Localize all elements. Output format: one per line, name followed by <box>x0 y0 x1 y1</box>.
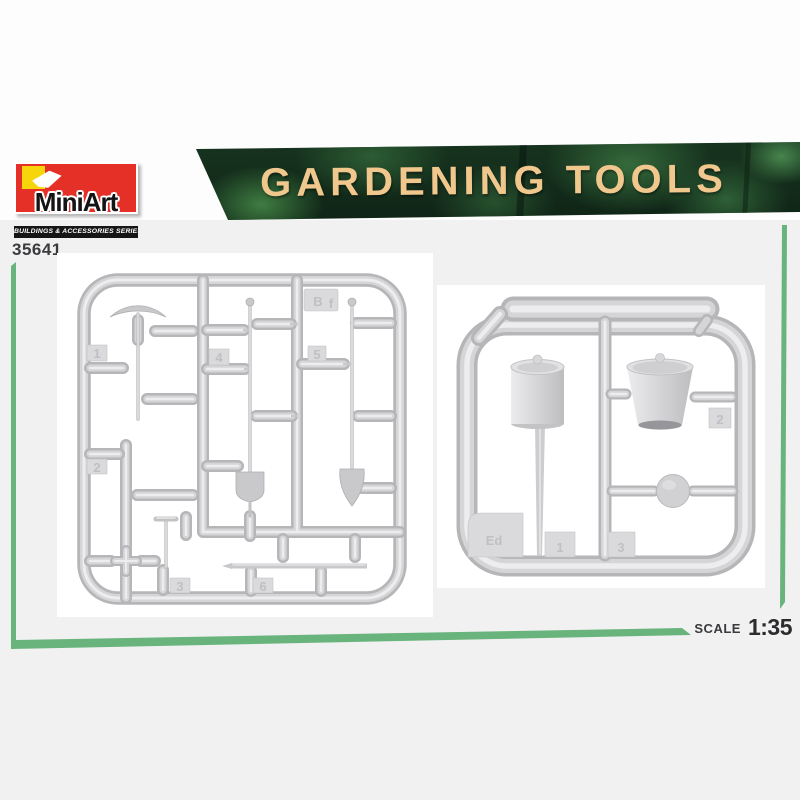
hammer-part <box>156 518 176 519</box>
part-number: 2 <box>716 412 723 427</box>
rake-handle-rod <box>222 563 367 569</box>
scale-indicator: SCALE 1:35 <box>694 616 792 639</box>
sprue-code-plate: B f <box>304 289 338 311</box>
part-number: 2 <box>93 460 100 475</box>
part-number: 3 <box>176 579 183 594</box>
part-number: 4 <box>215 350 223 365</box>
scale-label: SCALE <box>694 621 741 639</box>
sprue-photo-right: Ed 1 3 2 <box>437 285 765 588</box>
disc-part <box>657 475 690 508</box>
sprue-photo-left: B f 1 4 5 2 3 6 <box>57 253 433 617</box>
spade-pointed-blade <box>340 469 365 506</box>
part-number: 1 <box>93 346 100 361</box>
pipe-cross-part <box>115 550 137 572</box>
bucket-part <box>627 354 693 430</box>
tool-handle-parts <box>90 320 391 591</box>
part-number: 5 <box>313 347 320 362</box>
sprue-code-plate: Ed <box>468 513 523 557</box>
part-number-plates: 1 3 2 <box>545 408 731 557</box>
sprue-code: Ed <box>486 533 503 548</box>
sprue-code-suffix: f <box>329 296 334 311</box>
part-number: 6 <box>259 579 266 594</box>
box-art-page: MiniArt BUILDINGS & ACCESSORIES SERIES 3… <box>0 0 800 800</box>
scale-value: 1:35 <box>748 616 792 639</box>
sprue-code: B <box>313 294 322 309</box>
right-rule <box>780 225 787 609</box>
shovel-square-blade <box>236 472 264 502</box>
part-number: 1 <box>556 540 563 555</box>
part-number: 3 <box>617 540 624 555</box>
